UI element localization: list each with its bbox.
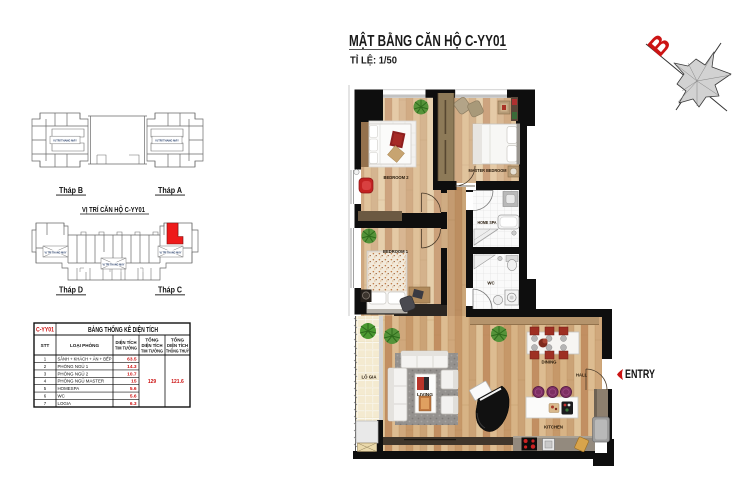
svg-text:WC: WC	[58, 394, 65, 399]
svg-text:121.6: 121.6	[171, 379, 184, 385]
svg-text:TIM TƯỜNG: TIM TƯỜNG	[141, 346, 163, 353]
svg-text:DINING: DINING	[542, 360, 557, 365]
svg-text:THÔNG THUỶ: THÔNG THUỶ	[166, 346, 189, 353]
svg-text:Tháp D: Tháp D	[59, 285, 83, 295]
svg-text:WC: WC	[487, 281, 495, 286]
svg-text:14.3: 14.3	[127, 364, 137, 370]
svg-text:15: 15	[131, 379, 137, 385]
svg-text:LOGIA: LOGIA	[58, 401, 71, 406]
svg-text:DIỆN TÍCH: DIỆN TÍCH	[116, 338, 138, 345]
svg-text:Tháp A: Tháp A	[158, 185, 182, 195]
svg-text:TỔNG: TỔNG	[145, 337, 159, 343]
svg-text:129: 129	[148, 379, 157, 385]
svg-text:5.6: 5.6	[130, 394, 137, 400]
svg-text:6.3: 6.3	[130, 401, 137, 407]
svg-text:MASTER BEDROOM: MASTER BEDROOM	[469, 168, 507, 173]
svg-text:DIỆN TÍCH: DIỆN TÍCH	[142, 341, 164, 348]
svg-text:HOME SPA: HOME SPA	[478, 220, 498, 225]
svg-text:VỊ TRÍ THANG MÁY: VỊ TRÍ THANG MÁY	[103, 263, 125, 266]
svg-text:5.6: 5.6	[130, 386, 137, 392]
svg-text:TỔNG: TỔNG	[171, 337, 185, 343]
svg-text:TỈ LỆ: 1/50: TỈ LỆ: 1/50	[350, 54, 397, 67]
svg-text:DIỆN TÍCH: DIỆN TÍCH	[167, 341, 189, 348]
svg-text:TIM TƯỜNG: TIM TƯỜNG	[115, 344, 137, 351]
svg-text:Tháp C: Tháp C	[158, 285, 182, 295]
svg-text:LOẠI PHÒNG: LOẠI PHÒNG	[70, 341, 100, 348]
svg-text:PHÒNG NGỦ 2: PHÒNG NGỦ 2	[58, 371, 89, 376]
svg-text:SẢNH + KHÁCH + ĂN + BẾP: SẢNH + KHÁCH + ĂN + BẾP	[58, 356, 112, 361]
svg-text:10.7: 10.7	[127, 371, 137, 377]
svg-text:LIVING: LIVING	[417, 392, 433, 397]
svg-text:BEDROOM 1: BEDROOM 1	[383, 249, 408, 254]
svg-text:ENTRY: ENTRY	[625, 368, 655, 381]
svg-text:C-YY01: C-YY01	[36, 328, 55, 334]
svg-text:PHÒNG NGỦ 1: PHÒNG NGỦ 1	[58, 364, 89, 369]
svg-text:HALL: HALL	[576, 373, 587, 378]
svg-text:VỊ TRÍ THANG MÁY: VỊ TRÍ THANG MÁY	[160, 251, 182, 254]
svg-text:Tháp B: Tháp B	[59, 185, 83, 195]
svg-text:MẬT BẰNG CĂN HỘ C-YY01: MẬT BẰNG CĂN HỘ C-YY01	[349, 32, 506, 50]
svg-text:VỊ TRÍ THANG MÁY: VỊ TRÍ THANG MÁY	[45, 251, 67, 254]
svg-text:VỊ TRÍ CĂN HỘ C-YY01: VỊ TRÍ CĂN HỘ C-YY01	[82, 205, 145, 214]
svg-text:KITCHEN: KITCHEN	[544, 425, 564, 430]
svg-text:LÔ GIA: LÔ GIA	[362, 375, 377, 380]
svg-text:63.5: 63.5	[127, 356, 137, 362]
svg-text:PHÒNG NGỦ MASTER: PHÒNG NGỦ MASTER	[58, 379, 105, 384]
svg-text:STT: STT	[41, 343, 50, 348]
svg-text:BEDROOM 2: BEDROOM 2	[384, 175, 409, 180]
svg-text:BẢNG THỐNG KÊ DIỆN TÍCH: BẢNG THỐNG KÊ DIỆN TÍCH	[88, 324, 158, 334]
svg-text:HOMESPA: HOMESPA	[58, 386, 80, 391]
